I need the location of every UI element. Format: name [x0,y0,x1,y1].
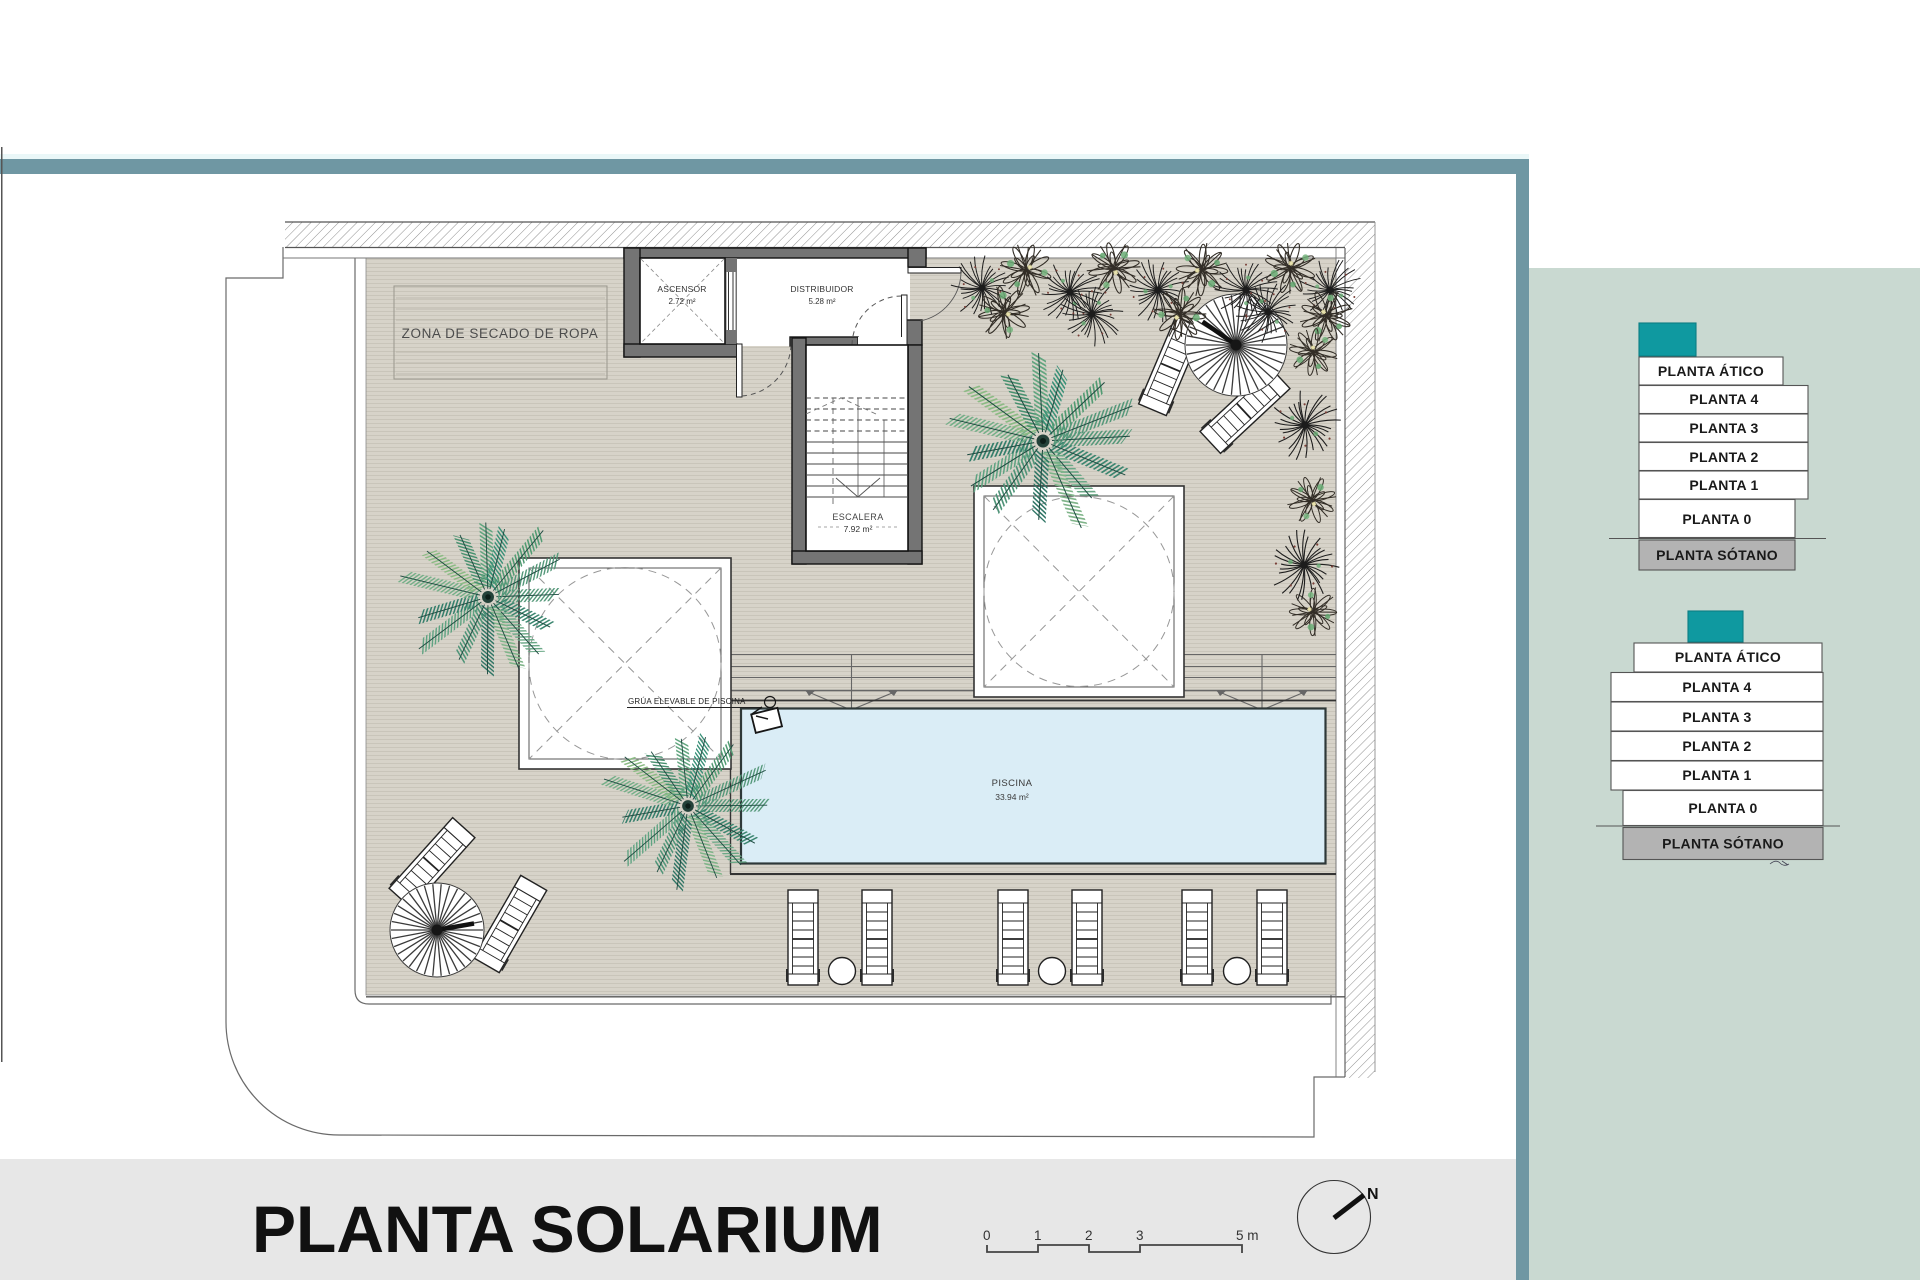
svg-text:PLANTA 1: PLANTA 1 [1689,477,1758,493]
svg-text:PLANTA 2: PLANTA 2 [1682,738,1751,754]
svg-text:3: 3 [1136,1228,1144,1243]
svg-text:PLANTA 3: PLANTA 3 [1689,420,1758,436]
svg-text:1: 1 [1034,1228,1042,1243]
svg-text:GRÚA ELEVABLE DE PISCINA: GRÚA ELEVABLE DE PISCINA [628,697,746,706]
svg-text:ASCENSOR: ASCENSOR [657,284,706,294]
svg-text:33.94 m²: 33.94 m² [995,792,1029,802]
svg-text:PLANTA 0: PLANTA 0 [1688,800,1757,816]
svg-text:2: 2 [1085,1228,1093,1243]
svg-text:PLANTA ÁTICO: PLANTA ÁTICO [1675,649,1781,665]
svg-text:PISCINA: PISCINA [992,778,1033,789]
svg-text:5 m: 5 m [1236,1228,1259,1243]
svg-text:5.28 m²: 5.28 m² [808,297,835,306]
svg-text:PLANTA 3: PLANTA 3 [1682,709,1751,725]
svg-text:PLANTA ÁTICO: PLANTA ÁTICO [1658,363,1764,379]
svg-text:0: 0 [983,1228,991,1243]
svg-text:ZONA DE SECADO DE ROPA: ZONA DE SECADO DE ROPA [402,326,599,341]
svg-text:PLANTA 4: PLANTA 4 [1682,679,1751,695]
svg-text:PLANTA SÓTANO: PLANTA SÓTANO [1656,546,1778,563]
svg-text:N: N [1367,1186,1379,1203]
svg-text:2.72 m²: 2.72 m² [668,297,695,306]
svg-text:PLANTA 1: PLANTA 1 [1682,767,1751,783]
svg-text:PLANTA SÓTANO: PLANTA SÓTANO [1662,835,1784,852]
svg-text:PLANTA 4: PLANTA 4 [1689,391,1758,407]
svg-text:PLANTA 2: PLANTA 2 [1689,449,1758,465]
svg-text:PLANTA SOLARIUM: PLANTA SOLARIUM [252,1192,883,1266]
svg-text:ESCALERA: ESCALERA [832,512,883,522]
svg-text:7.92 m²: 7.92 m² [844,524,873,534]
svg-text:PLANTA 0: PLANTA 0 [1682,511,1751,527]
svg-text:DISTRIBUIDOR: DISTRIBUIDOR [790,284,853,294]
